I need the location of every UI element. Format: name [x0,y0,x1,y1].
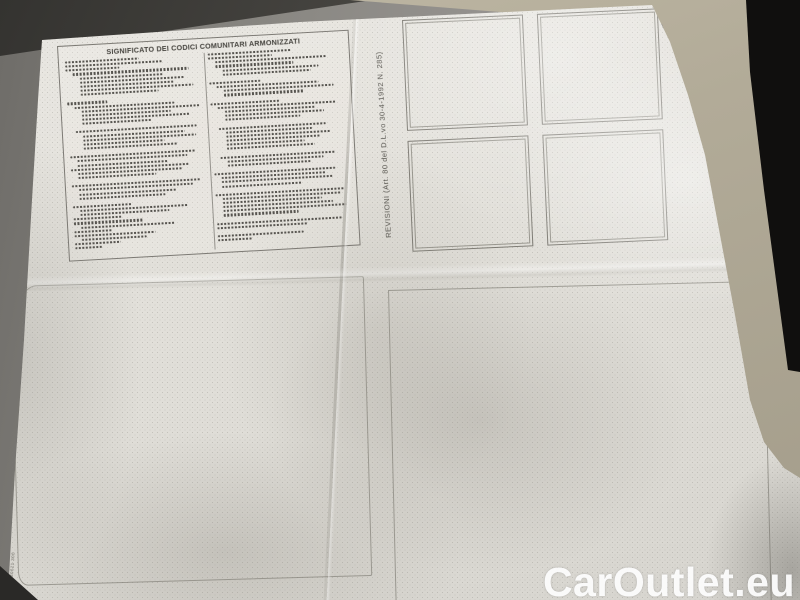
blank-panel-bottom-right [388,281,772,600]
legend-column-right [205,45,355,249]
legend-column-left [63,53,213,257]
legend-columns [63,45,356,257]
legend-text-line [217,231,303,238]
blank-panel-bottom-left [10,276,372,586]
revision-stamp-grid [402,8,668,251]
revision-stamp-box [537,8,663,124]
photo-scene: SIGNIFICATO DEI CODICI COMUNITARI ARMONI… [0,0,800,600]
legend-text-line [75,241,121,246]
revision-stamp-box [407,135,533,251]
codes-legend-panel: SIGNIFICATO DEI CODICI COMUNITARI ARMONI… [57,30,361,262]
legend-text-line [75,246,102,250]
revision-stamp-box [542,129,668,245]
legend-text-line [67,101,107,105]
watermark: CarOutlet.eu [543,559,795,600]
revision-stamp-box [402,15,528,131]
registration-document-paper: SIGNIFICATO DEI CODICI COMUNITARI ARMONI… [0,0,800,600]
legend-text-line [218,238,253,242]
